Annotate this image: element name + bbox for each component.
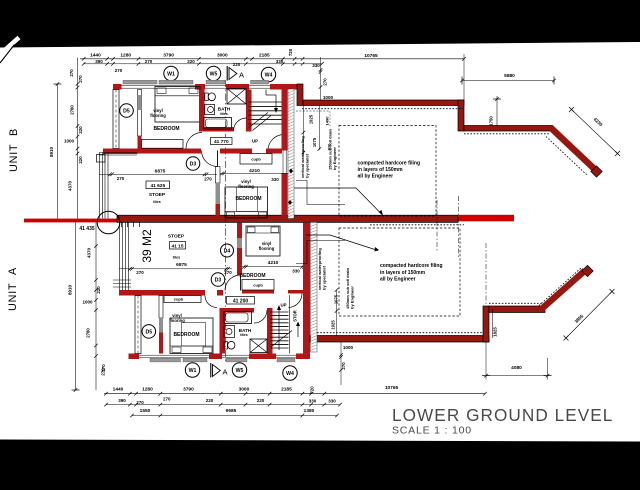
svg-text:4370: 4370	[87, 247, 92, 258]
svg-text:STOEP: STOEP	[149, 192, 166, 198]
svg-text:270: 270	[136, 270, 144, 275]
svg-text:390: 390	[95, 59, 103, 64]
svg-text:cupb: cupb	[174, 297, 184, 302]
svg-text:270: 270	[101, 364, 106, 372]
svg-text:1000: 1000	[82, 299, 93, 304]
svg-text:330: 330	[328, 399, 336, 404]
svg-text:41 435: 41 435	[79, 226, 95, 232]
svg-text:D5: D5	[123, 109, 130, 115]
svg-text:4080: 4080	[511, 365, 522, 371]
svg-text:2780: 2780	[70, 105, 75, 115]
svg-text:cupb: cupb	[251, 157, 261, 162]
svg-text:1000: 1000	[64, 139, 75, 144]
svg-text:BATH: BATH	[218, 106, 231, 111]
svg-text:1280: 1280	[120, 53, 131, 59]
svg-text:220: 220	[78, 126, 83, 134]
svg-text:all by Engineer: all by Engineer	[358, 174, 394, 180]
svg-text:UP: UP	[280, 303, 286, 308]
svg-text:41 625: 41 625	[150, 183, 165, 189]
svg-text:6875: 6875	[176, 262, 187, 268]
svg-text:270: 270	[323, 78, 328, 86]
svg-text:2780: 2780	[86, 328, 91, 338]
svg-text:flooring: flooring	[150, 113, 166, 118]
svg-text:3790: 3790	[183, 387, 194, 393]
svg-text:1075: 1075	[334, 294, 339, 304]
svg-text:compacted hardcore filing: compacted hardcore filing	[358, 161, 421, 167]
svg-text:D5: D5	[145, 330, 152, 336]
svg-text:1490: 1490	[325, 116, 330, 126]
svg-text:flooring: flooring	[259, 246, 275, 251]
svg-text:4210: 4210	[268, 260, 279, 266]
svg-text:270: 270	[115, 68, 123, 73]
svg-text:330: 330	[271, 177, 279, 182]
svg-text:W1: W1	[189, 368, 197, 374]
svg-text:220: 220	[78, 156, 83, 164]
svg-text:920: 920	[327, 143, 332, 150]
svg-text:2185: 2185	[259, 53, 270, 59]
svg-text:1550: 1550	[140, 408, 151, 414]
svg-text:tiles: tiles	[153, 200, 161, 204]
svg-text:STOR: STOR	[293, 310, 298, 322]
svg-text:by specialist: by specialist	[305, 153, 310, 178]
svg-text:270: 270	[224, 270, 232, 275]
svg-text:10765: 10765	[364, 53, 378, 59]
svg-text:1440: 1440	[113, 387, 124, 393]
svg-text:W4: W4	[265, 73, 273, 79]
svg-text:270: 270	[117, 176, 125, 181]
svg-text:270: 270	[136, 400, 144, 405]
svg-text:270: 270	[78, 75, 83, 83]
svg-text:A: A	[239, 70, 244, 79]
svg-text:BEDROOM: BEDROOM	[235, 196, 261, 202]
svg-text:10765: 10765	[385, 385, 399, 391]
svg-text:3790: 3790	[163, 53, 174, 59]
svg-text:cupb: cupb	[253, 282, 263, 287]
svg-text:6875: 6875	[155, 169, 166, 175]
svg-text:720: 720	[310, 386, 315, 394]
svg-text:1750: 1750	[489, 116, 494, 126]
svg-text:D3: D3	[215, 278, 222, 284]
svg-text:1000: 1000	[323, 95, 334, 100]
svg-text:720: 720	[288, 48, 293, 56]
svg-text:2185: 2185	[281, 387, 292, 393]
svg-text:tiles: tiles	[240, 333, 248, 337]
svg-text:LOWER GROUND LEVEL: LOWER GROUND LEVEL	[392, 405, 613, 425]
svg-text:41 200: 41 200	[233, 299, 249, 305]
svg-text:UNIT B: UNIT B	[8, 128, 20, 172]
svg-text:by Engineer: by Engineer	[332, 147, 337, 170]
svg-text:8910: 8910	[49, 146, 54, 157]
svg-text:D3: D3	[190, 162, 197, 168]
svg-text:by Engineer: by Engineer	[350, 286, 355, 309]
svg-text:220: 220	[206, 398, 214, 403]
svg-text:4370: 4370	[68, 180, 73, 191]
svg-text:41 15: 41 15	[171, 243, 183, 249]
svg-text:UNIT A: UNIT A	[7, 267, 19, 311]
svg-text:1925: 1925	[309, 114, 314, 124]
svg-text:BEDROOM: BEDROOM	[173, 332, 199, 338]
svg-text:flooring: flooring	[169, 318, 185, 323]
svg-text:9685: 9685	[226, 408, 237, 414]
svg-text:flooring: flooring	[238, 184, 254, 189]
svg-text:220: 220	[96, 286, 101, 294]
svg-text:UP: UP	[252, 139, 258, 144]
svg-text:330: 330	[276, 59, 284, 64]
svg-text:39 M2: 39 M2	[140, 229, 154, 263]
svg-text:A: A	[222, 367, 227, 376]
svg-text:1075: 1075	[312, 137, 317, 147]
svg-text:330: 330	[292, 268, 300, 273]
svg-text:W5: W5	[236, 368, 244, 374]
svg-text:by specialist: by specialist	[322, 265, 327, 290]
svg-text:1380: 1380	[304, 408, 315, 414]
svg-text:W4: W4	[286, 371, 294, 377]
svg-text:tiles: tiles	[173, 256, 181, 260]
svg-text:tiles: tiles	[220, 112, 228, 116]
svg-text:1000: 1000	[343, 345, 354, 350]
svg-text:220: 220	[187, 59, 195, 64]
svg-text:390: 390	[118, 398, 126, 403]
svg-text:BEDROOM: BEDROOM	[239, 273, 265, 279]
svg-text:270: 270	[69, 69, 74, 77]
svg-text:compacted hardcore filing: compacted hardcore filing	[380, 263, 443, 269]
svg-text:W1: W1	[167, 72, 175, 78]
svg-text:270: 270	[145, 59, 153, 64]
svg-text:8910: 8910	[68, 284, 73, 295]
svg-text:all by Engineer: all by Engineer	[380, 277, 416, 283]
svg-text:330: 330	[312, 63, 320, 68]
svg-text:1925: 1925	[331, 320, 336, 330]
svg-text:in layers of 150mm: in layers of 150mm	[380, 270, 426, 276]
svg-text:270: 270	[204, 177, 212, 182]
svg-text:1440: 1440	[90, 53, 101, 59]
svg-text:4210: 4210	[249, 168, 260, 174]
svg-text:1825: 1825	[493, 327, 498, 337]
svg-text:5880: 5880	[504, 73, 515, 79]
svg-text:330: 330	[309, 399, 317, 404]
svg-text:3000: 3000	[217, 53, 228, 59]
svg-text:D4: D4	[224, 249, 231, 255]
svg-text:in layers of 150mm: in layers of 150mm	[358, 167, 404, 173]
svg-text:270: 270	[341, 362, 346, 370]
svg-text:SCALE 1 : 100: SCALE 1 : 100	[392, 425, 472, 437]
svg-text:220: 220	[257, 398, 265, 403]
svg-text:220: 220	[233, 62, 241, 67]
svg-text:BEDROOM: BEDROOM	[153, 126, 179, 132]
svg-text:270: 270	[163, 397, 171, 402]
svg-text:41 770: 41 770	[214, 139, 229, 145]
svg-text:W5: W5	[210, 72, 218, 78]
svg-text:STOEP: STOEP	[168, 233, 185, 239]
svg-text:3000: 3000	[239, 387, 250, 393]
svg-text:1280: 1280	[142, 387, 153, 393]
